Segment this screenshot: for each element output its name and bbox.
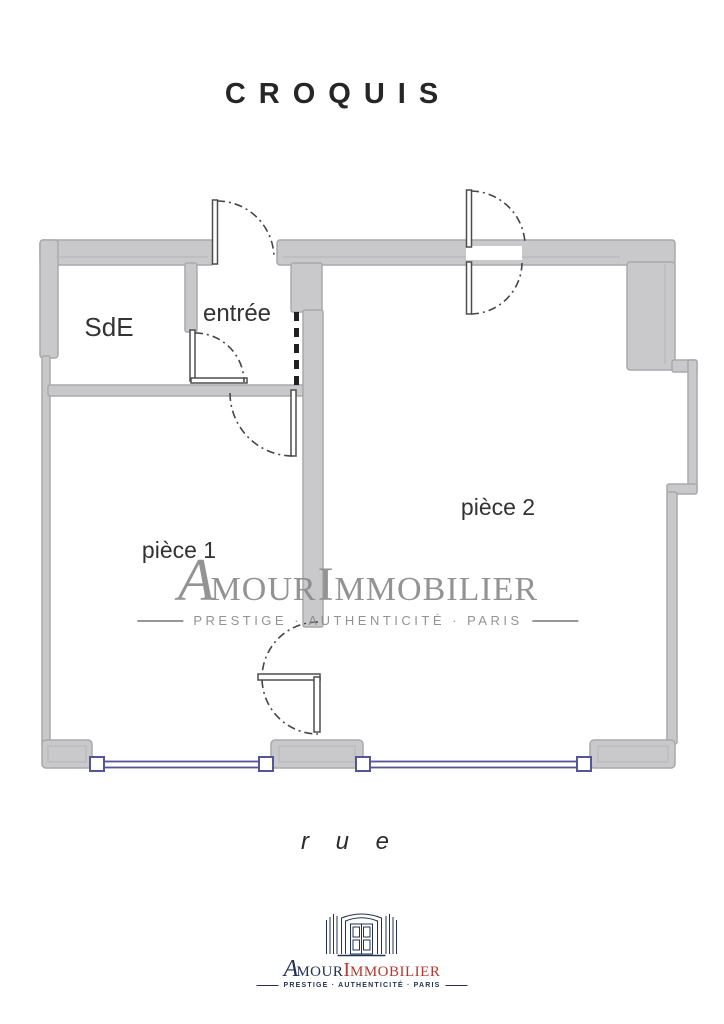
logo-dash-right [445,985,467,986]
watermark-tagline: PRESTIGE · AUTHENTICITÉ · PARIS [127,613,588,628]
piece1-piece2-door [258,622,320,734]
tagline-dash-left [137,620,183,622]
room-label-piece2: pièce 2 [461,494,535,521]
room-label-sde: SdE [84,312,133,343]
logo-letter-i: I [343,962,350,978]
watermark-wordmark: AMOURIMMOBILIER [127,556,588,609]
wall-inner-lines [48,257,668,762]
piece2-door-opening [466,246,522,260]
watermark-letter-i: I [318,566,334,604]
tagline-dash-right [533,620,579,622]
window-left [90,757,273,771]
entree-piece1-door [230,390,296,456]
entree-top-door [213,200,275,264]
street-label: r u e [301,828,399,856]
watermark-letter-a: A [178,556,215,604]
logo-tagline: PRESTIGE · AUTHENTICITÉ · PARIS [252,982,473,989]
floor-plan-drawing [0,0,724,1024]
logo-dash-left [257,985,279,986]
floorplan-page: CROQUIS [0,0,724,1024]
agency-watermark: AMOURIMMOBILIER PRESTIGE · AUTHENTICITÉ … [127,556,588,628]
window-right [356,757,591,771]
agency-logo: AMOURIMMOBILIER PRESTIGE · AUTHENTICITÉ … [252,908,473,989]
room-label-entree: entrée [203,300,271,328]
outer-walls [40,240,697,768]
parisian-door-icon [324,908,400,958]
sde-door [190,330,247,383]
logo-wordmark: AMOURIMMOBILIER [252,960,473,981]
